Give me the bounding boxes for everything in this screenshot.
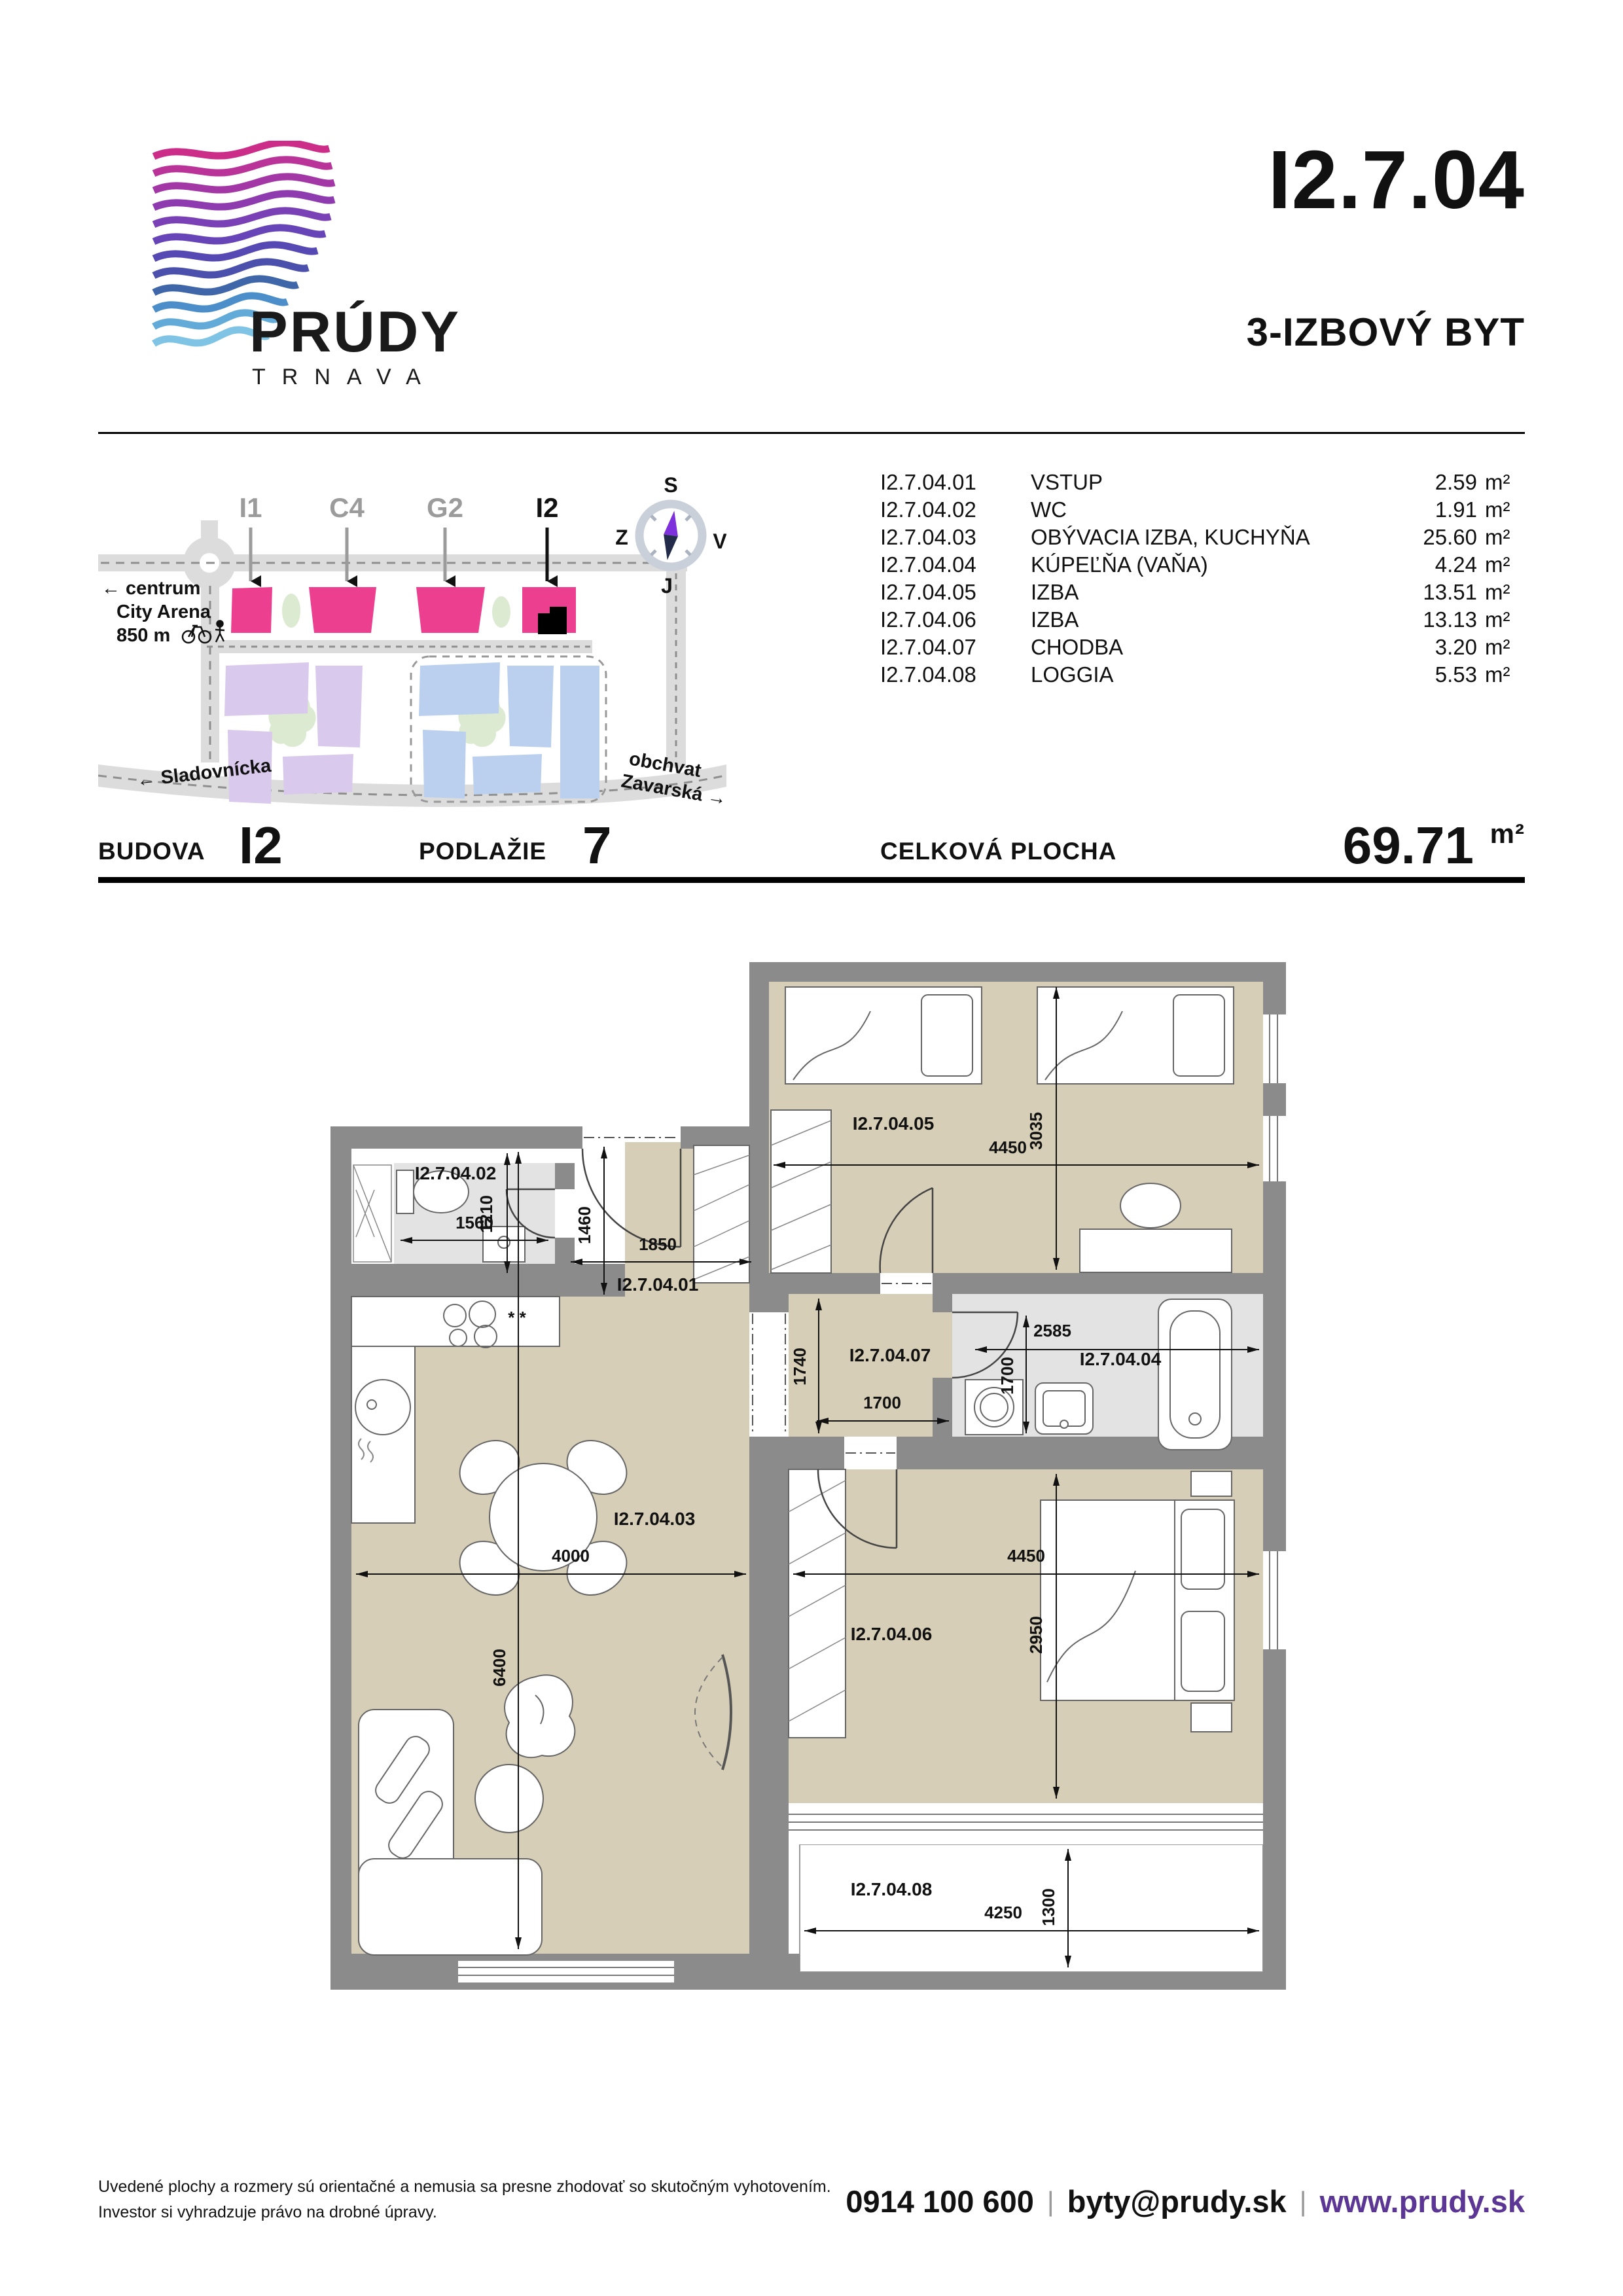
map-label-building-i1: I1 <box>239 492 262 523</box>
bathtub-icon <box>1158 1299 1232 1450</box>
bed-single-1 <box>785 987 982 1084</box>
room-area-table: I2.7.04.01VSTUP2.59m² I2.7.04.02WC1.91m²… <box>880 469 1528 689</box>
bed-double <box>1041 1471 1234 1732</box>
room-area: 4.24 <box>1385 552 1477 577</box>
shaft <box>353 1165 391 1262</box>
room-code: I2.7.04.02 <box>880 497 1031 522</box>
compass-east: V <box>713 529 726 553</box>
disclaimer-line-2: Investor si vyhradzuje právo na drobné ú… <box>98 2200 831 2225</box>
room-name: IZBA <box>1031 607 1385 632</box>
map-centrum-line1: ← centrum <box>101 578 200 599</box>
room-area: 5.53 <box>1385 662 1477 687</box>
table-row: I2.7.04.07CHODBA3.20m² <box>880 634 1528 661</box>
room-name: OBÝVACIA IZBA, KUCHYŇA <box>1031 525 1385 550</box>
logo-city-text: TRNAVA <box>252 365 437 389</box>
svg-text:3035: 3035 <box>1026 1112 1046 1150</box>
room-unit: m² <box>1477 580 1528 605</box>
room-label-04: I2.7.04.04 <box>1080 1349 1162 1369</box>
room-code: I2.7.04.01 <box>880 470 1031 495</box>
email-link[interactable]: byty@prudy.sk <box>1067 2183 1287 2219</box>
kitchen-marks: * * <box>508 1308 526 1327</box>
compass-south: J <box>661 574 673 598</box>
floor-plan: * * <box>327 949 1296 2009</box>
svg-text:4450: 4450 <box>989 1138 1027 1157</box>
podlazie-label: PODLAŽIE <box>419 838 546 865</box>
separator: | <box>1300 2186 1307 2217</box>
phone-number[interactable]: 0914 100 600 <box>846 2183 1034 2219</box>
site-map: I1 C4 G2 I2 ← centrum City Arena 850 m ←… <box>98 452 726 818</box>
map-buildings-blue <box>419 662 599 798</box>
room-unit: m² <box>1477 662 1528 687</box>
summary-divider <box>98 877 1525 883</box>
svg-text:1700: 1700 <box>863 1393 901 1412</box>
room-name: IZBA <box>1031 580 1385 605</box>
prudy-logo: PRÚDY TRNAVA <box>147 141 514 403</box>
room-area: 2.59 <box>1385 470 1477 495</box>
table-row: I2.7.04.05IZBA13.51m² <box>880 579 1528 606</box>
room-label-06: I2.7.04.06 <box>851 1624 933 1644</box>
room-area: 1.91 <box>1385 497 1477 522</box>
map-label-building-c4: C4 <box>329 492 365 523</box>
room-unit: m² <box>1477 635 1528 660</box>
room-label-05: I2.7.04.05 <box>853 1113 935 1134</box>
footer-disclaimer: Uvedené plochy a rozmery sú orientačné a… <box>98 2174 831 2225</box>
page-title-unit-code: I2.7.04 <box>1268 139 1525 221</box>
map-label-building-i2: I2 <box>535 492 558 523</box>
svg-text:2950: 2950 <box>1026 1616 1046 1654</box>
room-code: I2.7.04.06 <box>880 607 1031 632</box>
room-name: KÚPEĽŇA (VAŇA) <box>1031 552 1385 577</box>
room-name: CHODBA <box>1031 635 1385 660</box>
room-unit: m² <box>1477 552 1528 577</box>
map-label-building-g2: G2 <box>427 492 463 523</box>
svg-text:1210: 1210 <box>476 1195 496 1233</box>
svg-text:6400: 6400 <box>490 1649 509 1687</box>
coffee-table <box>475 1765 543 1833</box>
room-name: WC <box>1031 497 1385 522</box>
room-name: LOGGIA <box>1031 662 1385 687</box>
svg-text:1460: 1460 <box>575 1206 594 1244</box>
budova-label: BUDOVA <box>98 838 205 865</box>
map-centrum-line2: City Arena <box>116 601 211 622</box>
table-row: I2.7.04.04KÚPEĽŇA (VAŇA)4.24m² <box>880 551 1528 579</box>
svg-text:2585: 2585 <box>1033 1321 1071 1340</box>
room-label-07: I2.7.04.07 <box>849 1345 931 1365</box>
room-area: 25.60 <box>1385 525 1477 550</box>
page-subtitle-unit-type: 3-IZBOVÝ BYT <box>1247 313 1525 352</box>
bed-single-2 <box>1037 987 1234 1084</box>
compass-north: S <box>664 473 677 497</box>
plant-icon <box>505 1675 575 1757</box>
compass-icon: S J Z V <box>615 473 726 598</box>
footer-contact: 0914 100 600 | byty@prudy.sk | www.prudy… <box>846 2183 1525 2219</box>
svg-text:4450: 4450 <box>1007 1546 1045 1566</box>
room-label-02: I2.7.04.02 <box>415 1163 497 1183</box>
room-code: I2.7.04.05 <box>880 580 1031 605</box>
room-unit: m² <box>1477 525 1528 550</box>
room-unit: m² <box>1477 607 1528 632</box>
svg-text:4250: 4250 <box>984 1903 1022 1922</box>
room-code: I2.7.04.08 <box>880 662 1031 687</box>
room-area: 13.51 <box>1385 580 1477 605</box>
logo-brand-text: PRÚDY <box>249 299 461 364</box>
bath-sink <box>1035 1383 1093 1434</box>
plocha-label: CELKOVÁ PLOCHA <box>880 838 1116 865</box>
header-divider <box>98 432 1525 434</box>
budova-value: I2 <box>239 819 283 872</box>
svg-text:1700: 1700 <box>997 1357 1017 1395</box>
website-link[interactable]: www.prudy.sk <box>1320 2183 1525 2219</box>
room-code: I2.7.04.04 <box>880 552 1031 577</box>
map-centrum-line3: 850 m <box>116 625 170 646</box>
plocha-unit: m² <box>1490 818 1525 850</box>
summary-bar: BUDOVA I2 PODLAŽIE 7 CELKOVÁ PLOCHA 69.7… <box>98 812 1525 872</box>
compass-west: Z <box>615 526 628 549</box>
svg-text:1300: 1300 <box>1039 1888 1058 1926</box>
svg-text:1850: 1850 <box>639 1234 677 1254</box>
room-area: 13.13 <box>1385 607 1477 632</box>
plocha-value: 69.71 <box>1343 819 1474 872</box>
room-code: I2.7.04.07 <box>880 635 1031 660</box>
room-code: I2.7.04.03 <box>880 525 1031 550</box>
room-label-08: I2.7.04.08 <box>851 1879 933 1899</box>
table-row: I2.7.04.01VSTUP2.59m² <box>880 469 1528 496</box>
table-row: I2.7.04.06IZBA13.13m² <box>880 606 1528 634</box>
room-label-03: I2.7.04.03 <box>614 1509 696 1529</box>
disclaimer-line-1: Uvedené plochy a rozmery sú orientačné a… <box>98 2174 831 2200</box>
room-unit: m² <box>1477 470 1528 495</box>
room-area: 3.20 <box>1385 635 1477 660</box>
table-row: I2.7.04.02WC1.91m² <box>880 496 1528 524</box>
svg-text:1740: 1740 <box>790 1348 810 1386</box>
svg-text:4000: 4000 <box>552 1546 590 1566</box>
table-row: I2.7.04.08LOGGIA5.53m² <box>880 661 1528 689</box>
room-unit: m² <box>1477 497 1528 522</box>
table-row: I2.7.04.03OBÝVACIA IZBA, KUCHYŇA25.60m² <box>880 524 1528 551</box>
separator: | <box>1047 2186 1054 2217</box>
room-name: VSTUP <box>1031 470 1385 495</box>
room-label-01: I2.7.04.01 <box>617 1274 699 1295</box>
podlazie-value: 7 <box>582 819 612 872</box>
